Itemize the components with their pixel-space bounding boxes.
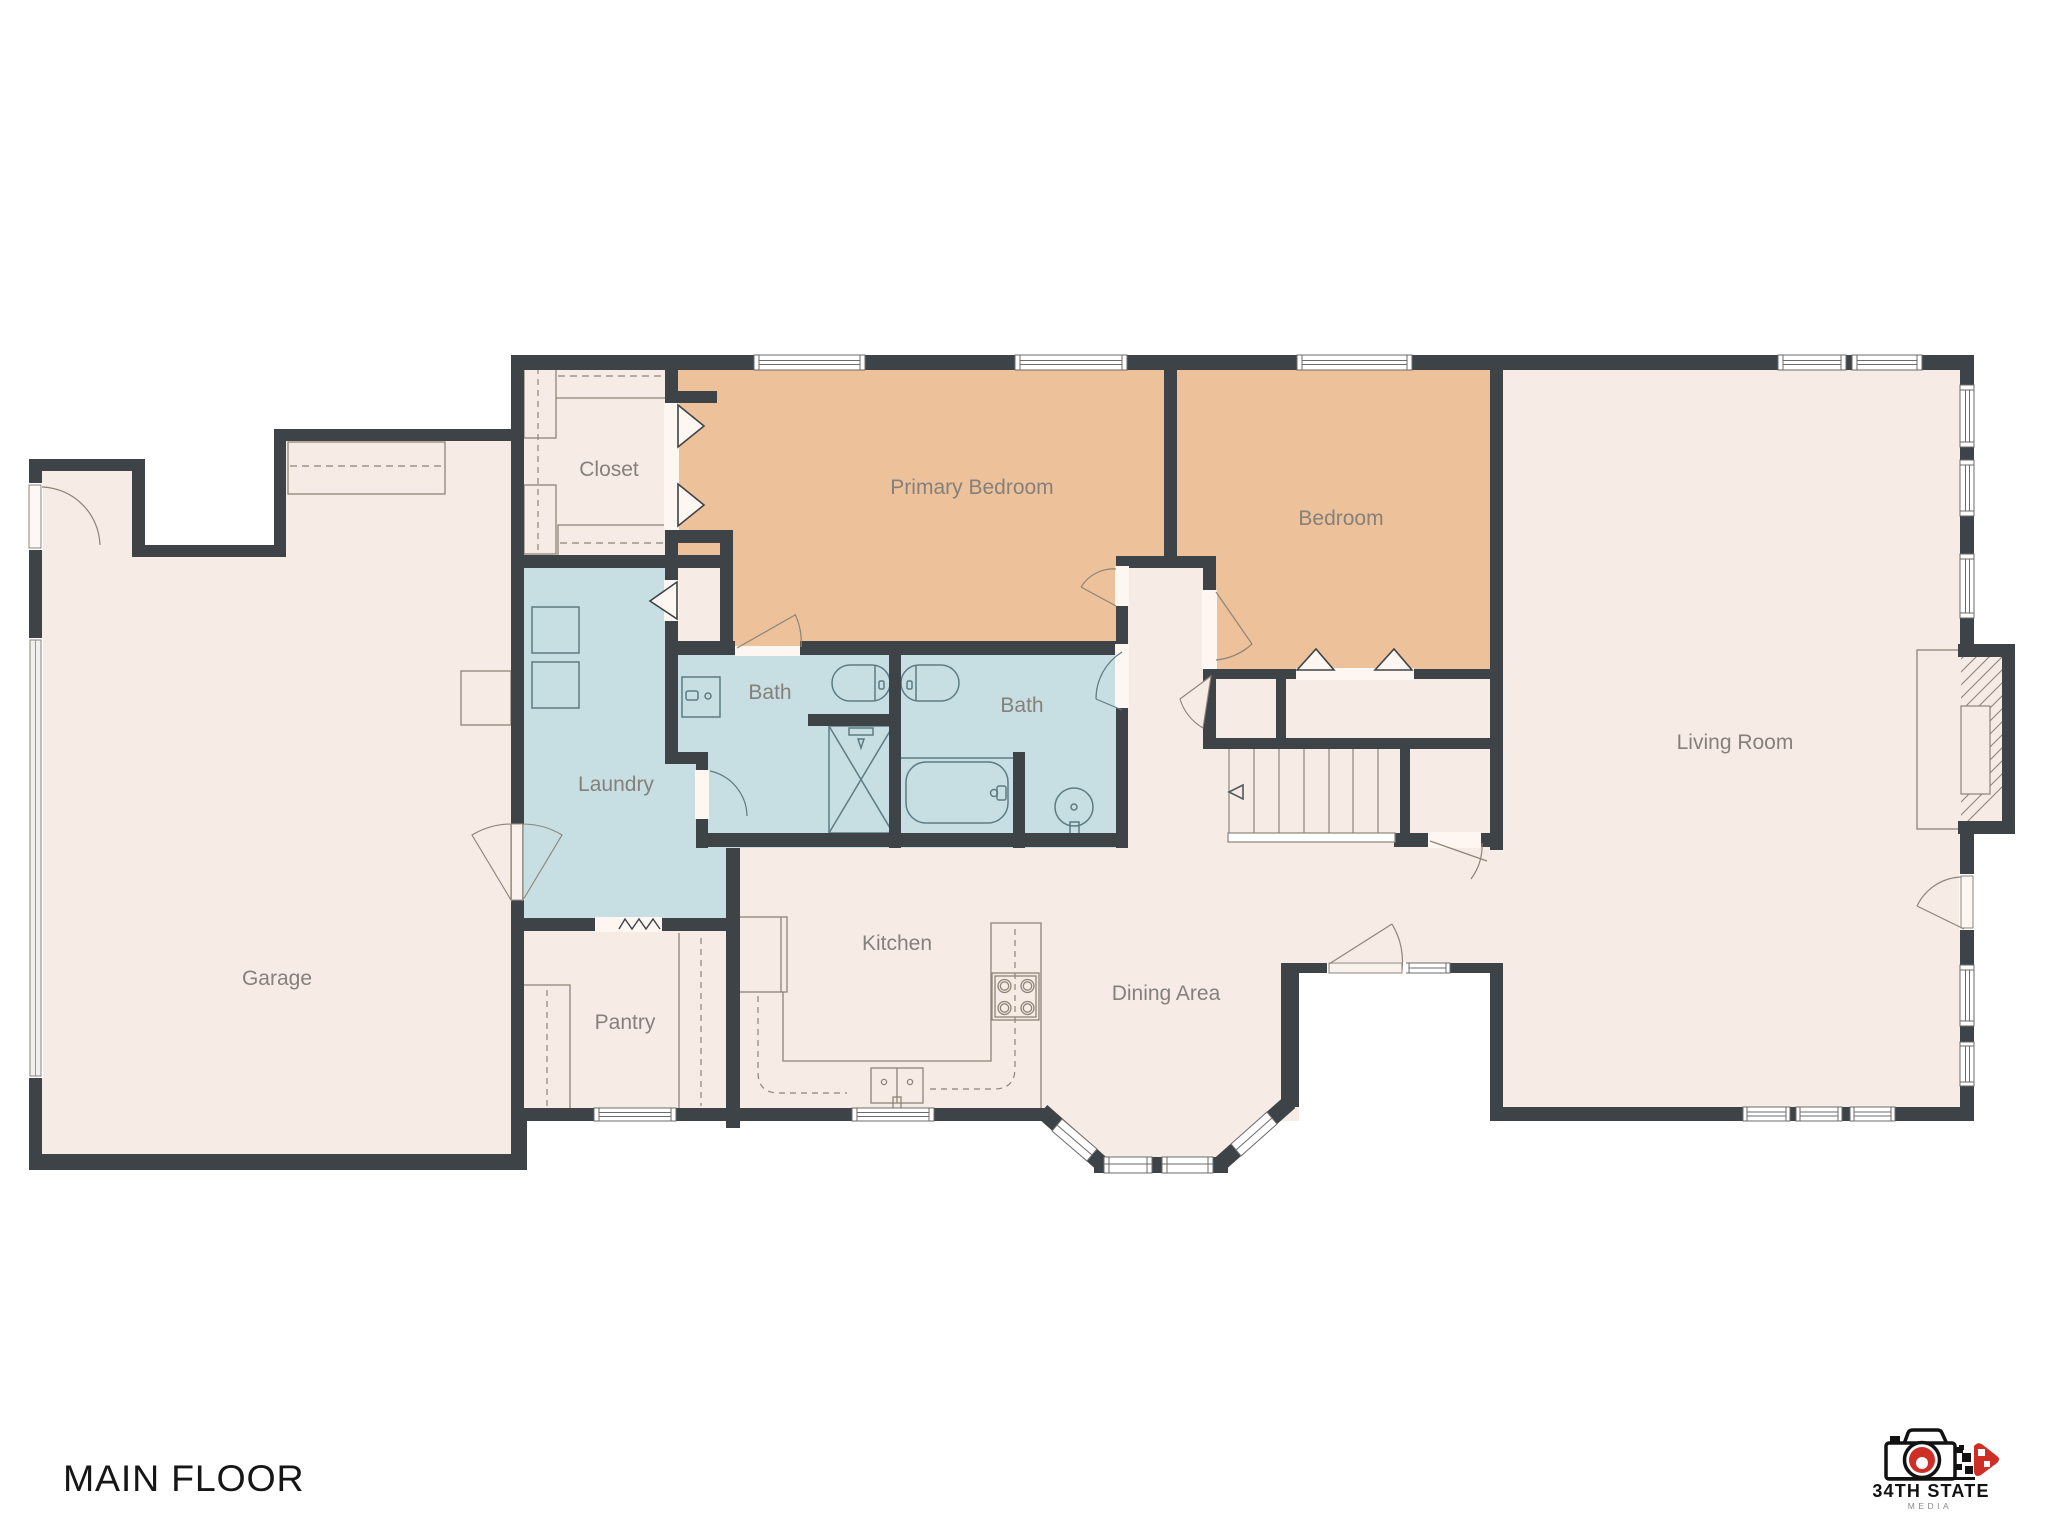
svg-text:Laundry: Laundry — [578, 773, 654, 796]
svg-text:Primary Bedroom: Primary Bedroom — [890, 476, 1053, 499]
svg-text:Pantry: Pantry — [595, 1011, 656, 1034]
svg-text:Dining Area: Dining Area — [1112, 982, 1221, 1005]
svg-text:Bath: Bath — [1000, 694, 1043, 717]
svg-text:Bedroom: Bedroom — [1298, 507, 1383, 530]
svg-text:34TH STATE: 34TH STATE — [1872, 1481, 1989, 1501]
svg-text:MEDIA: MEDIA — [1908, 1501, 1952, 1511]
svg-text:Living Room: Living Room — [1677, 731, 1794, 754]
svg-text:Garage: Garage — [242, 967, 312, 990]
svg-text:Kitchen: Kitchen — [862, 932, 932, 955]
svg-text:Bath: Bath — [748, 681, 791, 704]
svg-text:Closet: Closet — [579, 458, 639, 481]
svg-text:MAIN FLOOR: MAIN FLOOR — [63, 1457, 304, 1499]
